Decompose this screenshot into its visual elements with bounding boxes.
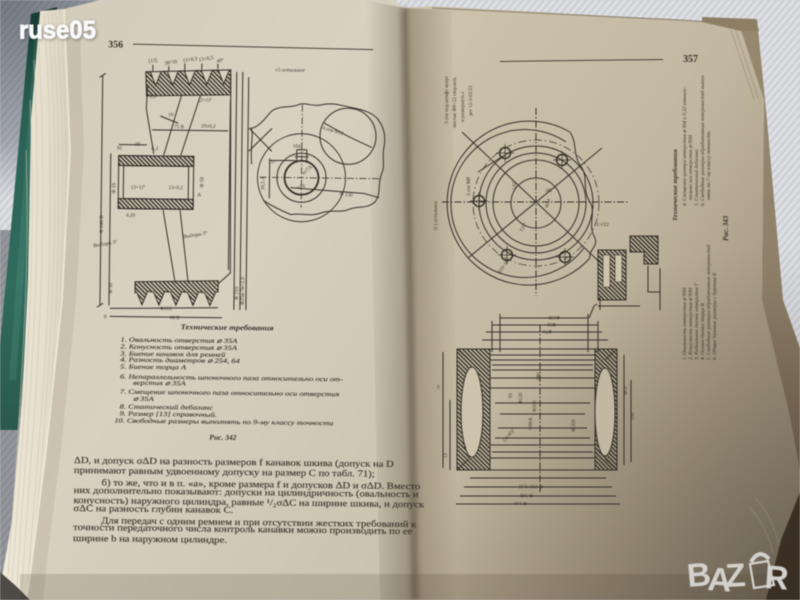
- svg-text:Ф 58: Ф 58: [199, 177, 205, 188]
- svg-text:(Г) остальное: (Г) остальное: [434, 200, 439, 230]
- svg-text:9,5: 9,5: [149, 94, 156, 100]
- svg-text:356: 356: [108, 39, 123, 50]
- svg-text:Б7: Б7: [463, 442, 468, 448]
- svg-text:70: 70: [437, 385, 442, 391]
- svg-text:А,1: А,1: [151, 146, 159, 152]
- svg-text:Z: Z: [724, 556, 746, 594]
- svg-text:120°: 120°: [513, 181, 518, 191]
- svg-text:⌀ 35А: ⌀ 35А: [133, 395, 154, 403]
- svg-text:357: 357: [683, 54, 698, 65]
- svg-text:Ф 248 В: Ф 248 В: [99, 215, 105, 234]
- svg-text:-05: -05: [545, 189, 552, 194]
- svg-text:Ф130: Ф130: [548, 314, 560, 319]
- svg-text:3 отв М8: 3 отв М8: [467, 177, 472, 196]
- svg-text:(3+1)°: (3+1)°: [131, 184, 145, 191]
- svg-text:Ф100: Ф100: [533, 400, 538, 412]
- svg-text:Ф 150: Ф 150: [514, 500, 527, 505]
- svg-text:Ф 190+0,12: Ф 190+0,12: [518, 483, 543, 488]
- svg-text:38,5 А: 38,5 А: [260, 176, 266, 190]
- svg-text:нять по 7-му классу точнос: нять по 7-му классу точности.: [706, 130, 712, 200]
- svg-text:дет 12-3-02/23: дет 12-3-02/23: [469, 85, 474, 116]
- svg-text:А: А: [197, 192, 201, 198]
- svg-text:Ф 148: Ф 148: [520, 492, 533, 497]
- svg-text:29±0,2: 29±0,2: [201, 124, 216, 130]
- svg-text:Технические требования: Технические требования: [181, 322, 274, 332]
- svg-text:95: 95: [509, 393, 514, 399]
- svg-text:R: R: [764, 558, 791, 597]
- svg-text:100: 100: [631, 412, 636, 420]
- svg-text:σΔС на разность глубин кан: σΔС на разность глубин канавок С.: [73, 504, 233, 516]
- svg-text:30: 30: [135, 142, 141, 148]
- svg-text:5. Свободные размеры обрабо: 5. Свободные размеры обработанных поверх…: [705, 244, 712, 360]
- svg-text:92: 92: [117, 145, 123, 151]
- svg-text:080: 080: [537, 372, 542, 380]
- svg-text:Технические требования: Технические требования: [672, 149, 679, 221]
- svg-text:Ф 38: Ф 38: [108, 282, 114, 293]
- svg-text:и развернуть с: и развернуть с: [461, 90, 466, 122]
- svg-text:Ф90А: Ф90А: [529, 417, 534, 430]
- svg-text:ruse05: ruse05: [19, 17, 96, 45]
- svg-text:4,20: 4,20: [126, 213, 136, 219]
- svg-text:1/√22: 1/√22: [596, 221, 609, 228]
- svg-text:Ф120: Ф120: [519, 392, 524, 404]
- svg-text:40°: 40°: [216, 57, 224, 65]
- svg-text:√5 остальное: √5 остальное: [275, 66, 306, 73]
- svg-text:6. Общие базовые размеры с: 6. Общие базовые размеры с буртика Б: [711, 273, 718, 360]
- svg-text:3. Радиальное биение отверс: 3. Радиальное биение отверстия Г: [693, 282, 700, 360]
- svg-text:3 отв под штифт конус: 3 отв под штифт конус: [445, 75, 450, 124]
- svg-text:4. Осевое биение торца В: 4. Осевое биение торца В: [699, 302, 706, 360]
- svg-text:6. Свободные размеры обрабо: 6. Свободные размеры обработанных поверх…: [699, 74, 706, 206]
- svg-text:68 В: 68 В: [170, 315, 181, 321]
- svg-text:5. Статический дебаланс: 5. Статический дебаланс: [693, 148, 700, 206]
- svg-text:(2+1)°: (2+1)°: [198, 96, 212, 103]
- svg-text:Ф 18: Ф 18: [111, 182, 117, 193]
- svg-text:Ф 200: Ф 200: [572, 419, 577, 432]
- svg-text:5. Биение торца А: 5. Биение торца А: [120, 363, 187, 371]
- svg-text:Ф74: Ф74: [543, 328, 552, 333]
- svg-text:Ф112: Ф112: [160, 306, 172, 312]
- svg-text:57: 57: [271, 159, 277, 165]
- svg-text:13+0,2: 13+0,2: [168, 185, 183, 191]
- svg-text:Рис. 342: Рис. 342: [209, 433, 236, 442]
- svg-text:Рис. 343: Рис. 343: [722, 215, 730, 241]
- svg-text:75 В: 75 В: [174, 124, 185, 130]
- svg-text:ширине b на наружном цилин: ширине b на наружном цилиндре.: [73, 534, 227, 546]
- svg-text:Ф92: Ф92: [547, 321, 556, 326]
- svg-text:чистые Ф8+22 сверлить: чистые Ф8+22 сверлить: [453, 76, 458, 128]
- svg-text:10: 10: [168, 112, 174, 118]
- svg-text:4. Смещение центра отверсти: 4. Смещение центра отверстия ⌀ 304 и 0,3…: [681, 87, 688, 206]
- svg-text:Ф25в-7в+2,0: Ф25в-7в+2,0: [240, 277, 246, 305]
- svg-text:Ф5т: Ф5т: [624, 386, 629, 395]
- svg-text:13: 13: [444, 453, 449, 459]
- svg-text:верстия ⌀ 35А: верстия ⌀ 35А: [133, 379, 186, 387]
- svg-text:104,: 104,: [293, 144, 302, 150]
